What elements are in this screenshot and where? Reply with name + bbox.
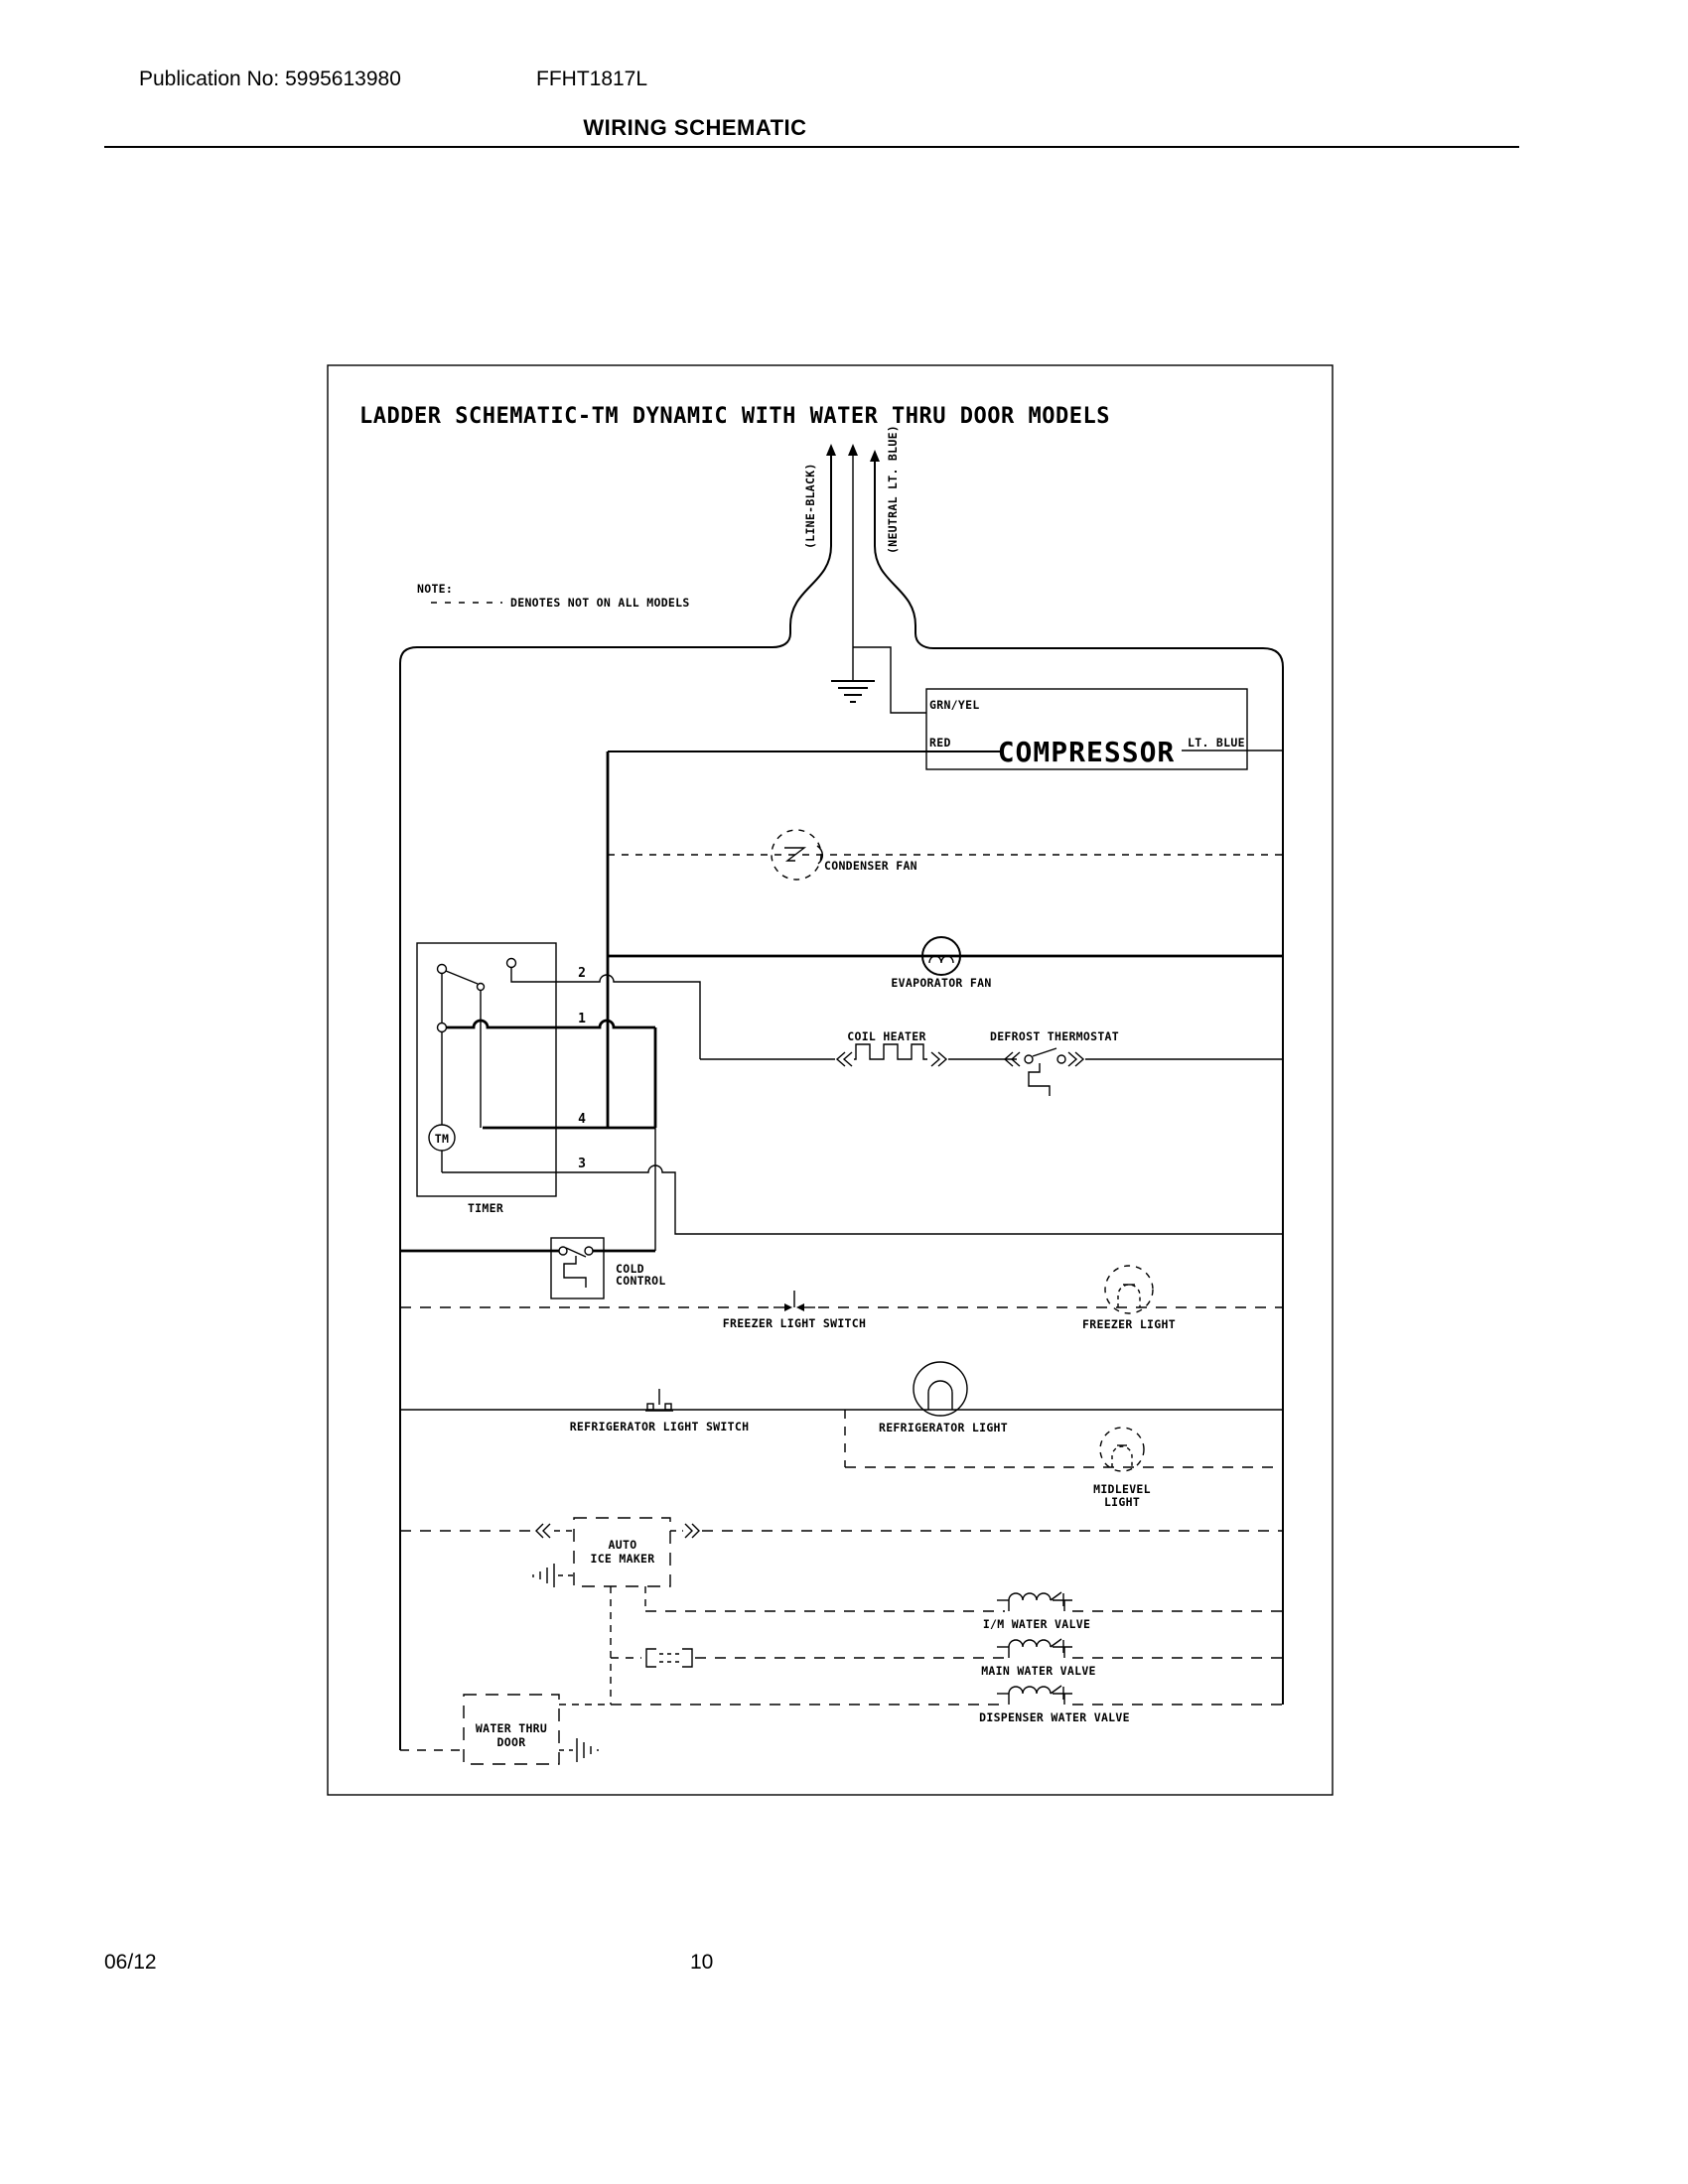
freezer-light-row: FREEZER LIGHT SWITCH FREEZER LIGHT bbox=[400, 1266, 1283, 1331]
condenser-fan-row: CONDENSER FAN bbox=[608, 830, 1283, 880]
midlevel-light-bulb-icon bbox=[1100, 1428, 1144, 1471]
solenoid-valve-icon bbox=[997, 1686, 1072, 1705]
connector-icon bbox=[931, 1052, 946, 1066]
defrost-row: COIL HEATER DEFROST THERMOSTAT bbox=[700, 1029, 1283, 1096]
midlevel-light-label-1: MIDLEVEL bbox=[1093, 1482, 1151, 1496]
schematic-title: LADDER SCHEMATIC-TM DYNAMIC WITH WATER T… bbox=[359, 404, 1110, 429]
refrigerator-light-switch-label: REFRIGERATOR LIGHT SWITCH bbox=[570, 1420, 750, 1433]
timer-terminal-1: 1 bbox=[578, 1012, 586, 1026]
freezer-light-filament bbox=[1118, 1285, 1140, 1307]
dispenser-water-valve-label: DISPENSER WATER VALVE bbox=[979, 1710, 1130, 1724]
freezer-light-bulb-icon bbox=[1105, 1266, 1153, 1313]
compressor-red-label: RED bbox=[929, 736, 951, 750]
evaporator-fan-row: EVAPORATOR FAN bbox=[608, 937, 1283, 990]
connector-icon bbox=[536, 1524, 550, 1538]
timer: TIMER TM 2 1 4 3 bbox=[417, 943, 1283, 1251]
refrigerator-light-row: REFRIGERATOR LIGHT SWITCH REFRIGERATOR L… bbox=[400, 1362, 1283, 1434]
timer-blade bbox=[446, 971, 478, 984]
thermostat-blade bbox=[1033, 1048, 1056, 1056]
midlevel-light-filament bbox=[1112, 1446, 1132, 1467]
ground-icon bbox=[831, 681, 875, 702]
timer-row3-wire bbox=[442, 1165, 1283, 1234]
ground-icon bbox=[533, 1564, 554, 1587]
line-black-label: (LINE-BLACK) bbox=[803, 463, 817, 549]
im-water-valve-row: I/M WATER VALVE bbox=[645, 1592, 1283, 1631]
timer-row1-wire bbox=[446, 1021, 655, 1027]
schematic-frame bbox=[328, 365, 1333, 1795]
arrow-right-icon bbox=[784, 1303, 792, 1311]
connector-icon bbox=[1068, 1052, 1083, 1066]
freezer-light-label: FREEZER LIGHT bbox=[1082, 1317, 1176, 1331]
main-water-valve-row: MAIN WATER VALVE bbox=[611, 1639, 1283, 1678]
water-thru-door: WATER THRU DOOR bbox=[400, 1695, 598, 1764]
im-water-valve-label: I/M WATER VALVE bbox=[983, 1617, 1090, 1631]
thermostat-contact bbox=[1025, 1055, 1033, 1063]
timer-contact bbox=[507, 959, 516, 968]
refrigerator-light-filament bbox=[928, 1381, 952, 1410]
dispenser-water-valve-row: DISPENSER WATER VALVE bbox=[559, 1686, 1283, 1724]
thermostat-contact bbox=[1057, 1055, 1065, 1063]
compressor: GRN/YEL RED LT. BLUE COMPRESSOR bbox=[608, 689, 1283, 769]
midlevel-light-label-2: LIGHT bbox=[1104, 1495, 1140, 1509]
cold-control-contact bbox=[585, 1247, 593, 1255]
water-thru-door-label-1: WATER THRU bbox=[476, 1721, 547, 1735]
solenoid-valve-icon bbox=[997, 1592, 1072, 1611]
coil-heater-label: COIL HEATER bbox=[847, 1029, 925, 1043]
ground-icon bbox=[577, 1738, 598, 1762]
timer-terminal-3: 3 bbox=[578, 1157, 586, 1171]
refrigerator-light-bulb-icon bbox=[914, 1362, 967, 1416]
defrost-thermostat-label: DEFROST THERMOSTAT bbox=[990, 1029, 1119, 1043]
arrow-left-icon bbox=[796, 1303, 804, 1311]
timer-row2-wire bbox=[511, 967, 700, 1059]
timer-contact bbox=[438, 1024, 447, 1032]
cold-control-contact bbox=[559, 1247, 567, 1255]
ice-maker-label-2: ICE MAKER bbox=[590, 1552, 654, 1566]
compressor-grnyel-label: GRN/YEL bbox=[929, 698, 980, 712]
footer-page-number: 10 bbox=[690, 1951, 713, 1974]
cold-control-label-2: CONTROL bbox=[616, 1274, 666, 1288]
timer-label: TIMER bbox=[468, 1201, 503, 1215]
neutral-wire-right-rail bbox=[875, 460, 1283, 1705]
evaporator-fan-label: EVAPORATOR FAN bbox=[891, 976, 991, 990]
page-title: WIRING SCHEMATIC bbox=[583, 115, 806, 140]
ice-maker-label-1: AUTO bbox=[609, 1538, 637, 1552]
compressor-name: COMPRESSOR bbox=[998, 736, 1176, 768]
model-number: FFHT1817L bbox=[536, 68, 647, 90]
coil-heater-icon bbox=[854, 1044, 927, 1059]
timer-contact bbox=[438, 965, 447, 974]
timer-contact bbox=[478, 984, 485, 991]
timer-box bbox=[417, 943, 556, 1196]
cold-control-box bbox=[551, 1238, 604, 1298]
cold-control-blade bbox=[566, 1248, 586, 1257]
main-water-valve-label: MAIN WATER VALVE bbox=[981, 1664, 1096, 1678]
supply-wires: (LINE-BLACK) (NEUTRAL LT. BLUE) bbox=[400, 425, 1283, 1750]
footer-date: 06/12 bbox=[104, 1951, 157, 1974]
neutral-label: (NEUTRAL LT. BLUE) bbox=[886, 425, 900, 554]
plug-connector-icon bbox=[646, 1649, 692, 1667]
page-footer: 06/12 10 bbox=[104, 1951, 713, 1974]
wiring-schematic-page: Publication No: 5995613980 FFHT1817L WIR… bbox=[0, 0, 1688, 2184]
timer-terminal-2: 2 bbox=[578, 966, 586, 981]
cold-control: COLD CONTROL bbox=[400, 1238, 666, 1298]
publication-number: Publication No: 5995613980 bbox=[139, 68, 401, 90]
refrigerator-light-label: REFRIGERATOR LIGHT bbox=[879, 1421, 1008, 1434]
thermostat-step bbox=[1029, 1063, 1050, 1096]
connector-icon bbox=[837, 1052, 852, 1066]
timer-motor-label: TM bbox=[435, 1132, 449, 1146]
auto-ice-maker-row: AUTO ICE MAKER bbox=[400, 1518, 1283, 1705]
water-thru-door-label-2: DOOR bbox=[497, 1735, 526, 1749]
refrigerator-switch-contact bbox=[647, 1404, 653, 1410]
note-legend: NOTE: DENOTES NOT ON ALL MODELS bbox=[417, 582, 690, 610]
cold-control-step bbox=[564, 1256, 586, 1288]
compressor-ltblue-label: LT. BLUE bbox=[1188, 736, 1245, 750]
timer-terminal-4: 4 bbox=[578, 1112, 586, 1127]
condenser-fan-label: CONDENSER FAN bbox=[824, 859, 917, 873]
note-text: DENOTES NOT ON ALL MODELS bbox=[510, 596, 690, 610]
freezer-light-switch-label: FREEZER LIGHT SWITCH bbox=[723, 1316, 866, 1330]
page-header: Publication No: 5995613980 FFHT1817L WIR… bbox=[104, 68, 1519, 147]
refrigerator-switch-contact bbox=[665, 1404, 671, 1410]
connector-icon bbox=[685, 1524, 699, 1538]
note-label: NOTE: bbox=[417, 582, 453, 596]
solenoid-valve-icon bbox=[997, 1639, 1072, 1658]
